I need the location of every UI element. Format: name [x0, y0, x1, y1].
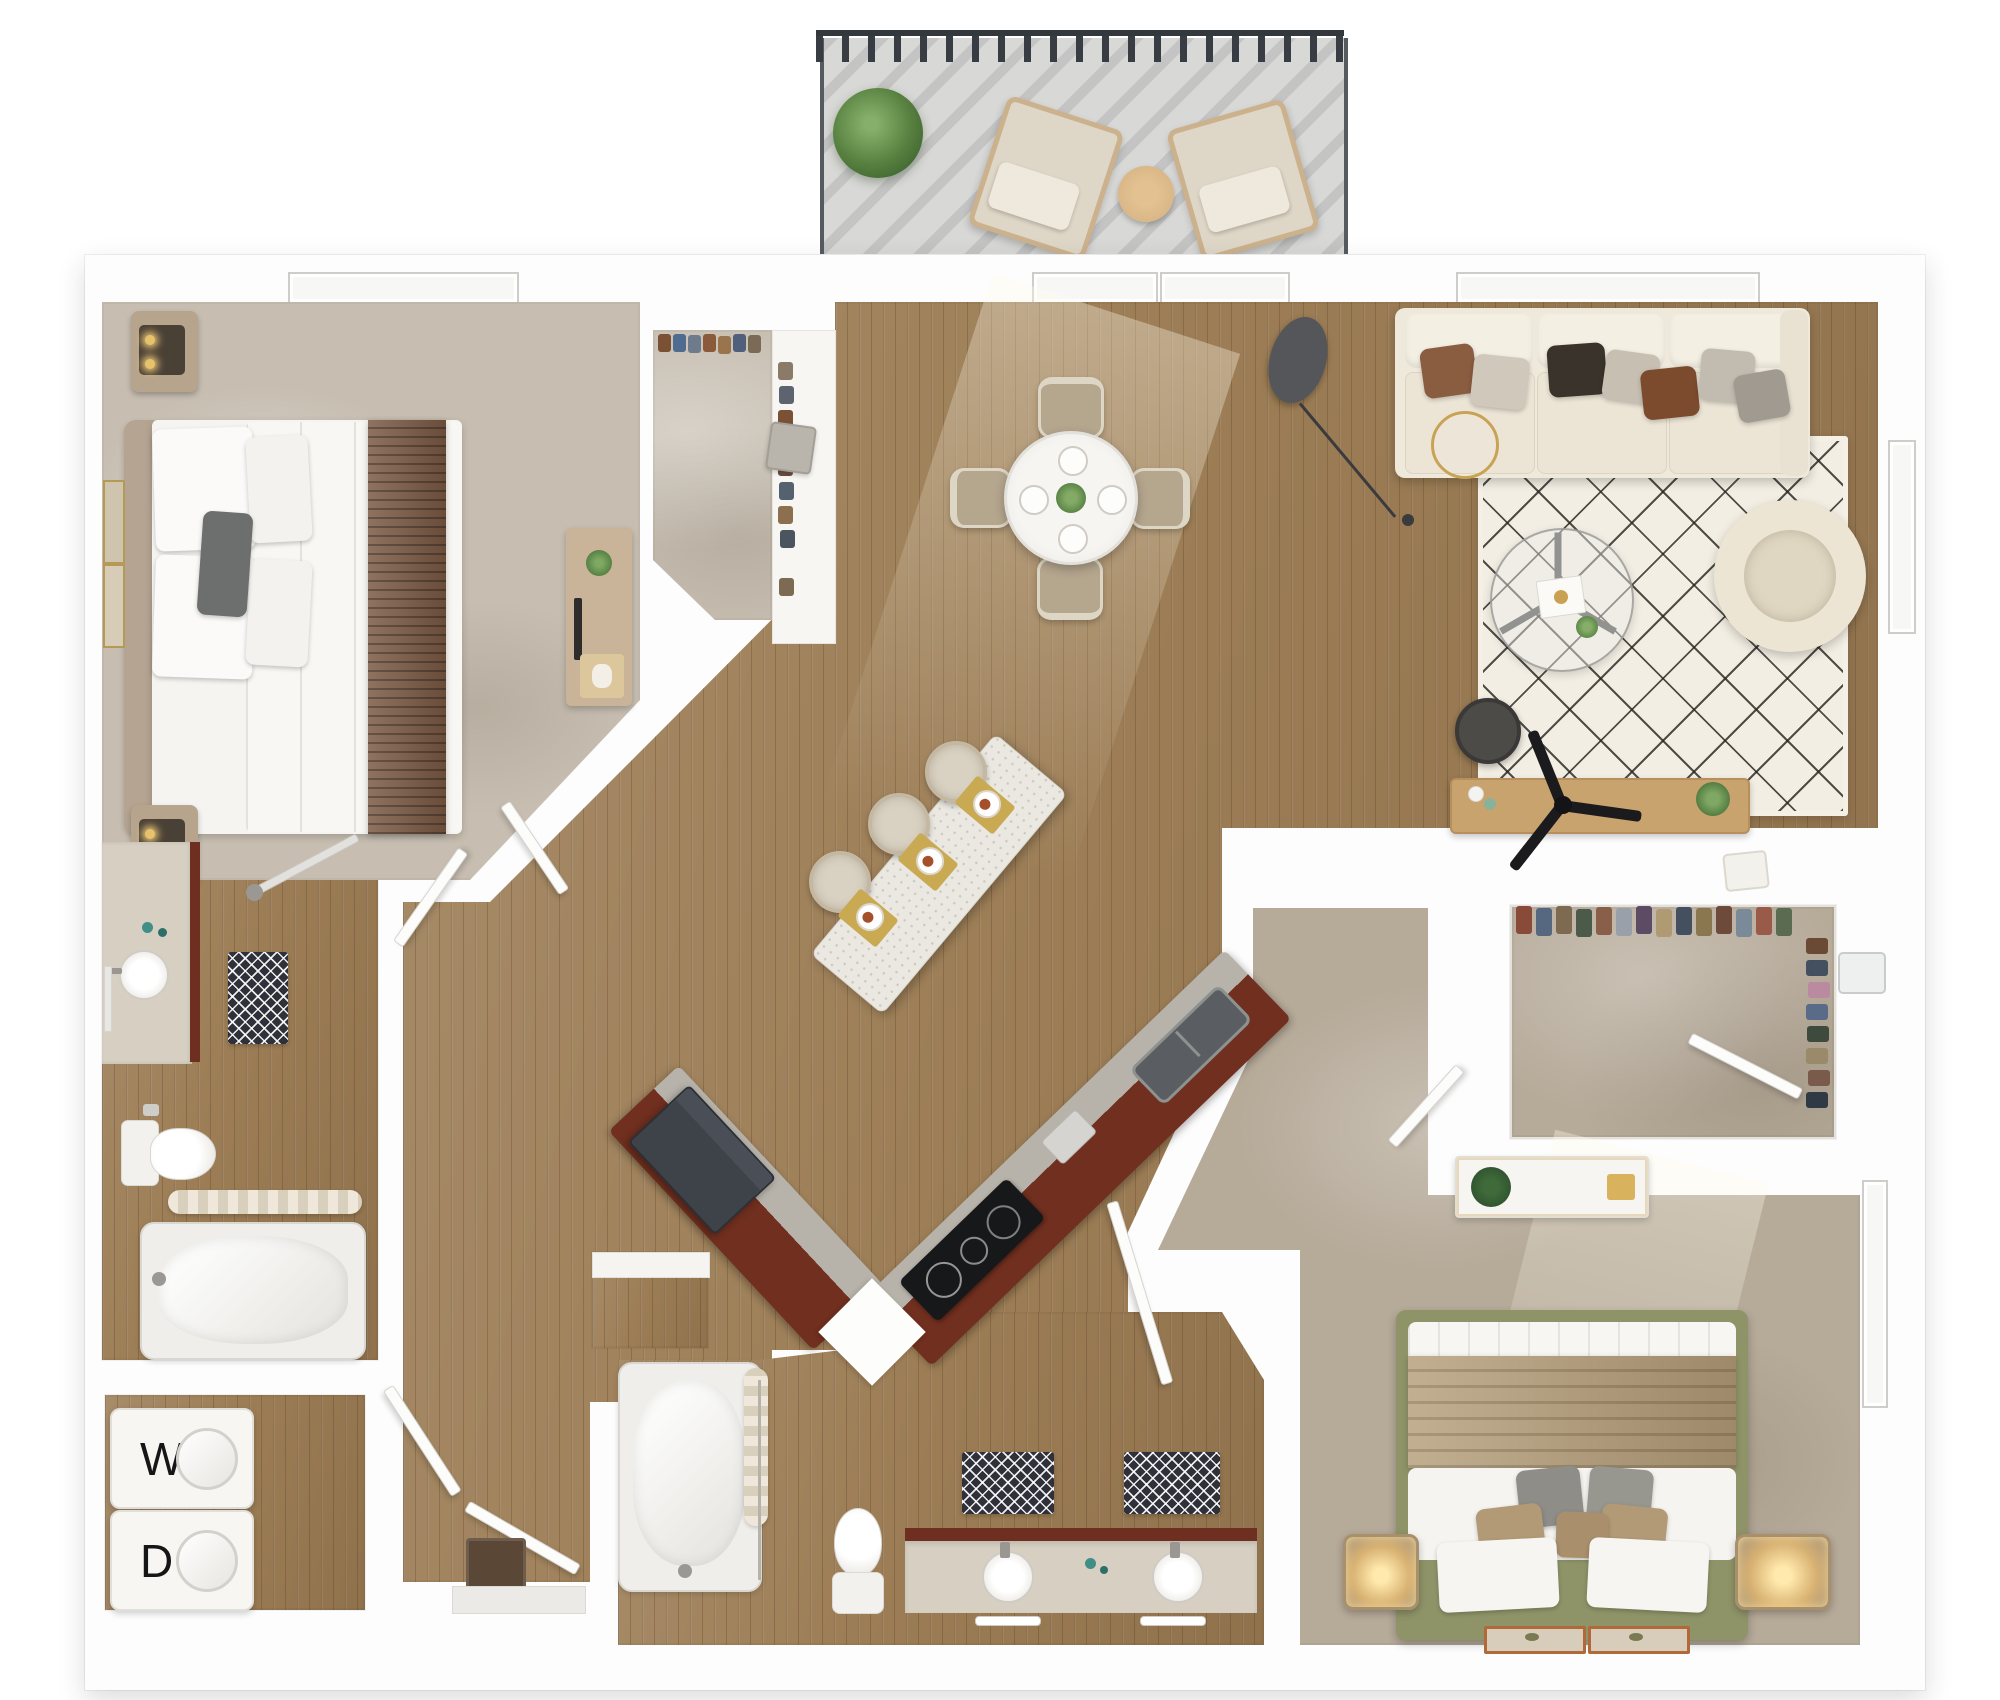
- bath2-faucet: [1170, 1542, 1180, 1558]
- walkin-clothes-rack: [1516, 906, 1532, 934]
- tv-hub: [1554, 796, 1572, 814]
- bath2-tub-faucet: [678, 1564, 692, 1578]
- entry-threshold: [452, 1586, 586, 1614]
- bath2-soap: [1085, 1558, 1096, 1569]
- bath2-bath-mat: [962, 1452, 1054, 1514]
- nightstand-lamp: [145, 359, 155, 369]
- cooktop-burner: [980, 1198, 1028, 1246]
- bath1-sink: [119, 950, 169, 1000]
- decor-gold-ring: [1431, 411, 1499, 479]
- bath1-tub-basin: [158, 1236, 348, 1344]
- console-plant: [1696, 782, 1730, 816]
- bath1-tp-holder: [143, 1104, 159, 1116]
- wall-art-frame: [103, 480, 125, 564]
- bed1-runner-blanket: [368, 420, 446, 834]
- wall-art-frame: [103, 564, 125, 648]
- bath2-vanity-counter: [905, 1541, 1257, 1613]
- bath1-shower-head: [246, 884, 263, 901]
- window-living: [1456, 272, 1760, 304]
- bath2-curtain-rod: [758, 1380, 761, 1580]
- bath1-soap: [142, 922, 153, 933]
- dryer-label: D: [112, 1534, 173, 1588]
- bath2-bath-mat: [1124, 1452, 1220, 1514]
- entry-doormat: [466, 1538, 526, 1590]
- bed2-accent-mat: [1484, 1626, 1586, 1654]
- bed2-accent-mat: [1588, 1626, 1690, 1654]
- bed2-pillow-white: [1586, 1537, 1709, 1613]
- dryer-door: [176, 1530, 238, 1592]
- cooktop-burner: [918, 1254, 969, 1305]
- nightstand-lamp: [145, 335, 155, 345]
- table-plate: [1019, 485, 1049, 515]
- book-candle: [1553, 589, 1569, 605]
- bath1-vanity-cabinet-edge: [190, 842, 200, 1062]
- bed2-nightstand-right: [1735, 1534, 1831, 1610]
- balcony-slider-pane-2: [1160, 272, 1290, 304]
- console-plant-spiky: [1471, 1167, 1511, 1207]
- dining-table: [1004, 431, 1138, 565]
- bath1-towel-bar: [104, 966, 112, 1032]
- table-plate: [1058, 446, 1088, 476]
- coffee-table-book: [1536, 575, 1587, 619]
- bath2-toilet-bowl: [834, 1508, 882, 1576]
- cooktop-burner: [954, 1231, 994, 1271]
- coffee-table-plant: [1576, 616, 1598, 638]
- bath1-tub: [140, 1222, 366, 1360]
- sofa-pillow-dark-leather: [1546, 342, 1607, 398]
- dining-chair-west: [950, 468, 1012, 528]
- bed1-pillow: [245, 558, 312, 667]
- balcony-plant: [833, 88, 923, 178]
- floor-walkin-closet: [1510, 905, 1836, 1139]
- dresser-remote: [574, 598, 582, 660]
- closet1-basket: [765, 421, 817, 475]
- window-living-right: [1888, 440, 1916, 634]
- bed2-nightstand-left: [1343, 1534, 1419, 1610]
- table-plate: [1097, 485, 1127, 515]
- bed1-accent-pillow: [196, 510, 253, 617]
- bed2-console: [1455, 1156, 1649, 1218]
- bed2-tan-blanket: [1408, 1356, 1736, 1468]
- sofa-pillow-cognac-leather: [1640, 365, 1701, 421]
- console-cup: [1468, 786, 1484, 802]
- walkin-hamper: [1838, 952, 1886, 994]
- window-bedroom1: [288, 272, 519, 304]
- balcony-side-table: [1118, 166, 1174, 222]
- mat-motif: [1629, 1633, 1643, 1641]
- dining-chair-north: [1038, 377, 1104, 439]
- living-side-table: [1455, 698, 1521, 764]
- table-plant-centerpiece: [1056, 483, 1086, 513]
- bed1-headboard: [124, 420, 154, 834]
- bath1-shower-curtain: [168, 1190, 362, 1214]
- bath1-soap: [158, 928, 167, 937]
- bath2-tub: [618, 1362, 762, 1592]
- walkin-shoe-column: [1806, 938, 1828, 954]
- pantry-shelf: [592, 1252, 710, 1278]
- bath1-toilet-bowl: [150, 1128, 216, 1180]
- bath2-sink: [982, 1551, 1034, 1603]
- floor-closet1: [653, 330, 772, 620]
- bath2-tub-basin: [633, 1380, 745, 1566]
- dining-chair-east: [1130, 468, 1190, 529]
- bath2-drawer-pull: [1140, 1616, 1206, 1626]
- dresser-plant: [586, 550, 612, 576]
- bath2-toilet-tank: [832, 1572, 884, 1614]
- walkin-basket: [1722, 850, 1770, 892]
- lounge-chair-pillow: [1197, 165, 1291, 234]
- bath2-faucet: [1000, 1542, 1010, 1558]
- bath2-shower-curtain: [744, 1368, 768, 1526]
- bed1-pillow: [245, 434, 312, 543]
- bath2-sink: [1152, 1551, 1204, 1603]
- console-gold-box: [1607, 1174, 1635, 1200]
- balcony-slider-pane-1: [1032, 272, 1158, 304]
- barrel-armchair-seat: [1744, 530, 1836, 622]
- closet1-shoe-shelf-column: [778, 362, 793, 380]
- bath1-bath-mat: [228, 952, 288, 1044]
- console-cup-green: [1484, 798, 1496, 810]
- dresser-tray: [580, 654, 624, 698]
- dining-chair-south: [1037, 557, 1103, 620]
- bath1-tub-faucet: [152, 1272, 166, 1286]
- bed2-pillow-white: [1436, 1537, 1559, 1613]
- washer: W: [110, 1408, 254, 1509]
- bath2-vanity-cabinet-edge: [905, 1528, 1257, 1541]
- bath2-drawer-pull: [975, 1616, 1041, 1626]
- balcony-railing: [816, 30, 1344, 62]
- washer-door: [176, 1428, 238, 1490]
- closet1-shoe-row: [658, 334, 671, 352]
- bath2-soap: [1100, 1566, 1108, 1574]
- sofa-pillow-slate: [1732, 368, 1792, 424]
- floorplan-canvas: W D: [0, 0, 2000, 1700]
- arc-lamp-base: [1402, 514, 1414, 526]
- lounge-chair-pillow: [986, 160, 1081, 232]
- kitchen-sink-divider: [1175, 1031, 1201, 1058]
- sofa-pillow-lightgray: [1469, 353, 1530, 411]
- mat-motif: [1525, 1633, 1539, 1641]
- bed1-dresser: [566, 528, 632, 706]
- bed1-nightstand-top: [131, 311, 198, 392]
- nightstand-lamp: [145, 829, 155, 839]
- dryer: D: [110, 1510, 254, 1611]
- table-plate: [1058, 524, 1088, 554]
- washer-label: W: [112, 1432, 183, 1486]
- window-bedroom2-right: [1862, 1180, 1888, 1408]
- tray-figurine: [592, 664, 612, 688]
